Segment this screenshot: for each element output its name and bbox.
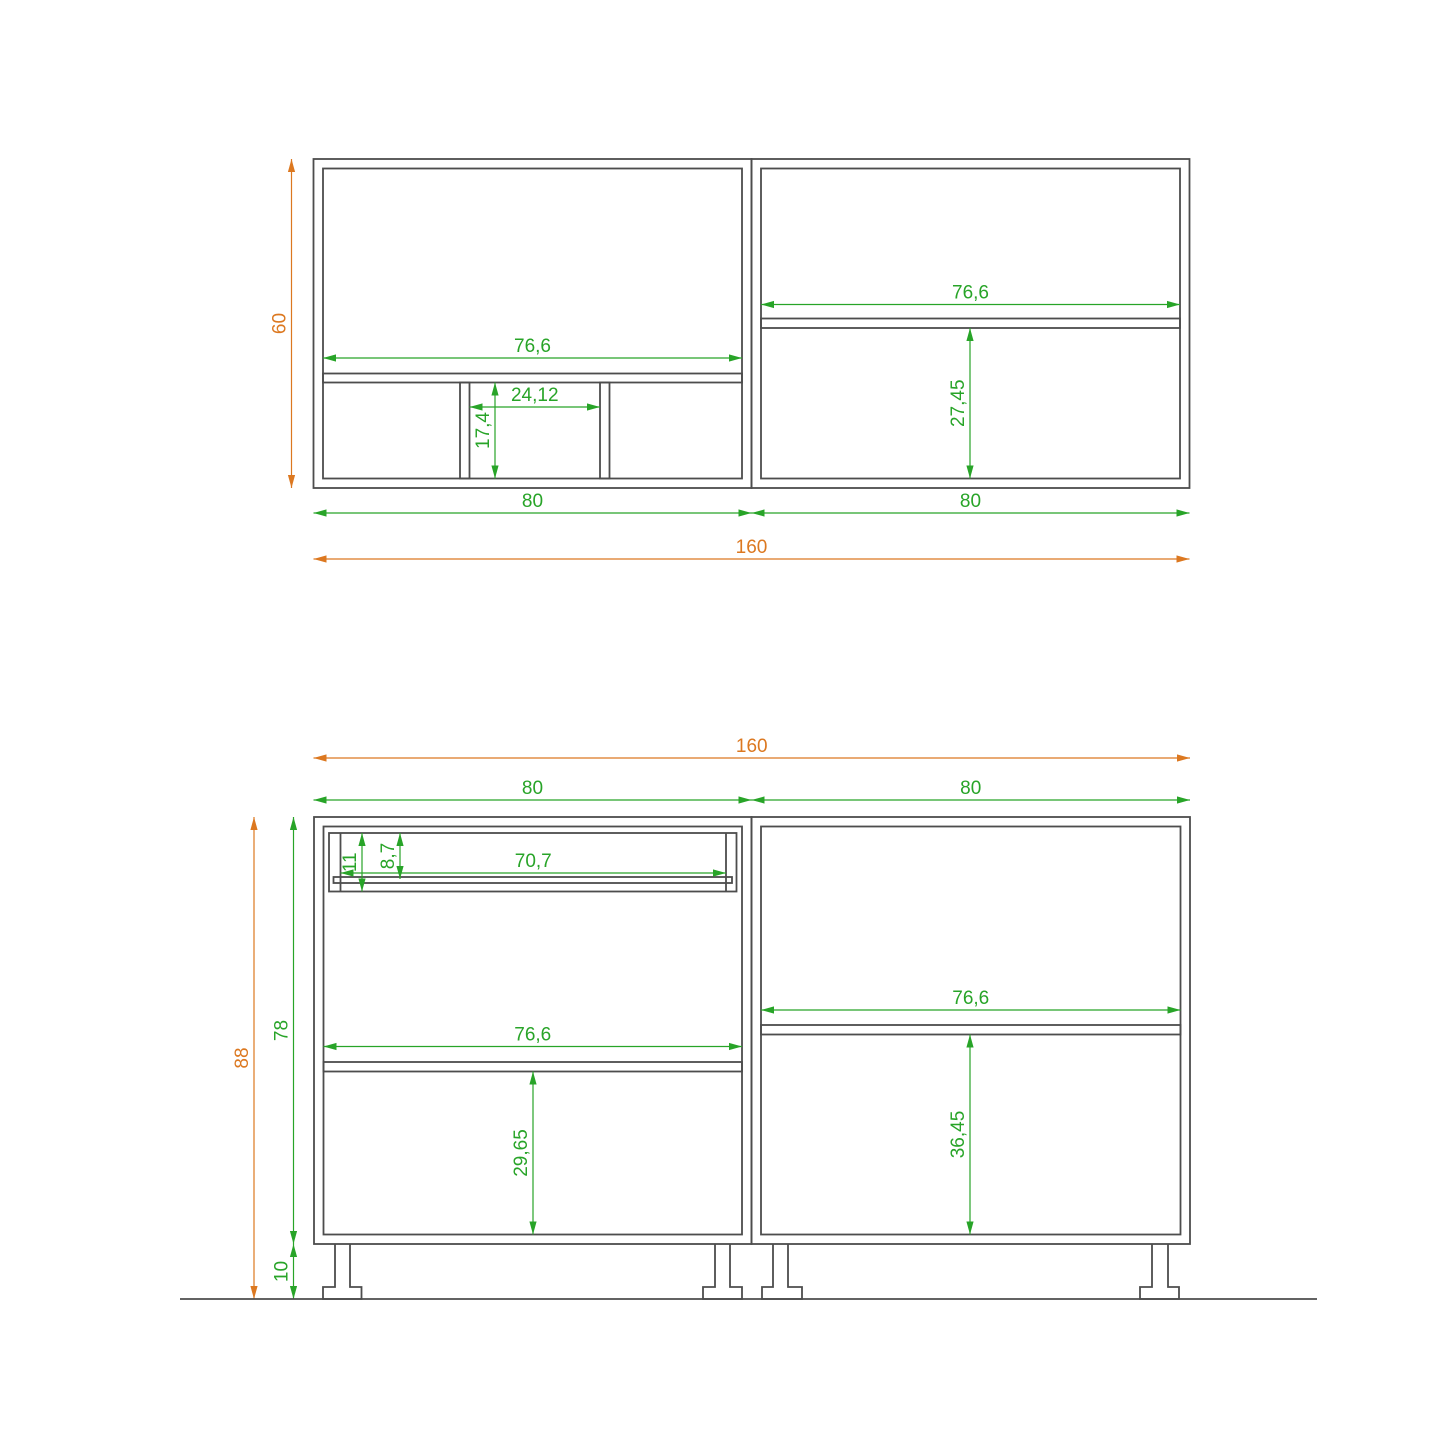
dim-label: 80 [960, 778, 981, 799]
dim-label: 76,6 [514, 1025, 551, 1046]
dim-label: 60 [270, 313, 291, 334]
dim-label: 24,12 [511, 385, 559, 406]
drawing-canvas: 6076,624,1217,476,627,458080160160808088… [0, 0, 1445, 1445]
background [0, 0, 1445, 1445]
dim-label: 17,4 [473, 412, 494, 449]
dim-label: 76,6 [952, 988, 989, 1009]
dim-label: 76,6 [514, 336, 551, 357]
dim-label: 80 [522, 491, 543, 512]
dim-label: 8,7 [378, 843, 399, 869]
dim-label: 27,45 [948, 379, 969, 427]
cabinet-technical-drawing: 6076,624,1217,476,627,458080160160808088… [0, 0, 1445, 1445]
dim-label: 80 [960, 491, 981, 512]
dim-label: 160 [736, 537, 768, 558]
dim-label: 78 [272, 1020, 293, 1041]
dim-label: 29,65 [511, 1129, 532, 1177]
dim-label: 10 [272, 1261, 293, 1282]
dim-label: 70,7 [515, 851, 552, 872]
dim-label: 88 [232, 1047, 253, 1068]
dim-label: 80 [522, 778, 543, 799]
dim-label: 11 [340, 852, 361, 872]
dim-label: 160 [736, 736, 768, 757]
dim-label: 76,6 [952, 283, 989, 304]
dim-label: 36,45 [948, 1111, 969, 1159]
